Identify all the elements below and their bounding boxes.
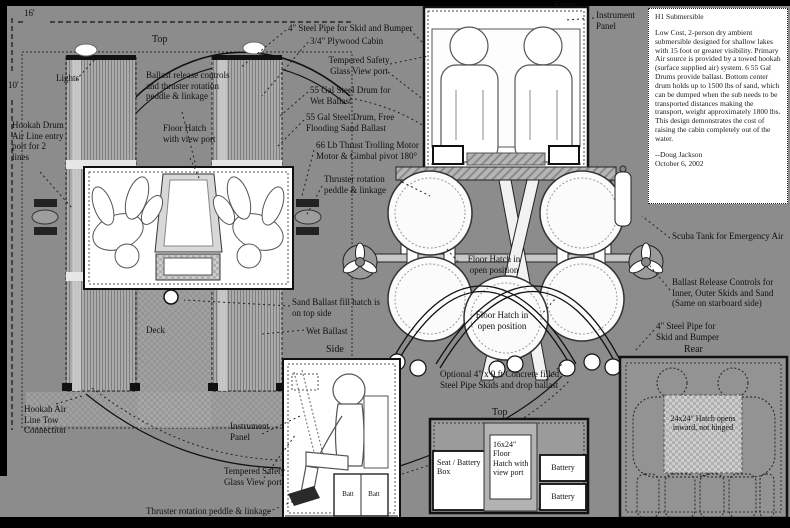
front-view-title: Front bbox=[554, 0, 594, 12]
instrument-panel-front-label: Instrument Panel bbox=[596, 10, 646, 31]
starboard-thruster-pod bbox=[295, 199, 321, 235]
sand-fill-hatch bbox=[164, 290, 178, 304]
batt-label-1: Batt bbox=[336, 490, 360, 498]
beam-dimension: 16' bbox=[24, 8, 35, 19]
hookah-tow-label: Hookah Air Line Tow Connection bbox=[24, 404, 74, 436]
rear-view-title: Rear bbox=[684, 344, 724, 356]
ballast-controls-label: Ballast release controls and thruster ro… bbox=[146, 70, 242, 102]
floor-hatch-16-label: 16x24" Floor Hatch with view port bbox=[493, 440, 529, 478]
cabin-plan bbox=[84, 167, 293, 289]
deck-label: Deck bbox=[146, 325, 186, 336]
floor-hatch-open-label-1: Floor Hatch in open position bbox=[458, 254, 530, 275]
optional-skids-label: Optional 4" x 9 ft Concrete filled Steel… bbox=[440, 369, 562, 390]
trolling-motor-label: 66 Lb Thrust Trolling Motor Motor & Gimb… bbox=[316, 140, 446, 161]
thruster-rotation-top-label: Thruster rotation peddle & linkage bbox=[324, 174, 402, 195]
floor-hatch-viewport-label: Floor Hatch with view port bbox=[163, 123, 223, 144]
scuba-tank-label: Scuba Tank for Emergency Air bbox=[672, 231, 790, 242]
rear-view bbox=[620, 357, 787, 518]
drum-wet-label: 55 Gal Steel Drum for Wet Ballast bbox=[310, 85, 402, 106]
description-title: H1 Submersible bbox=[655, 13, 781, 22]
rear-hatch-24x24 bbox=[664, 395, 742, 473]
front-view bbox=[424, 7, 588, 168]
starboard-trolling-motor bbox=[627, 243, 664, 279]
lights-label: Lights bbox=[56, 73, 96, 84]
battery-label-1: Battery bbox=[540, 463, 586, 472]
h1-submersible-blueprint: Top Front Side Rear Top 16' 10' Lights H… bbox=[0, 0, 790, 528]
steel-pipe-front-label: 4" Steel Pipe for Skid and Bumper bbox=[288, 23, 428, 34]
description-body: Low Cost, 2-person dry ambient submersib… bbox=[655, 29, 781, 144]
description-date: October 6, 2002 bbox=[655, 160, 781, 169]
hatch-24-label: 24x24" Hatch opens inward, not hinged bbox=[667, 414, 739, 433]
side-view-title: Side bbox=[326, 344, 366, 356]
description-box: H1 Submersible Low Cost, 2-person dry am… bbox=[648, 8, 788, 204]
tempered-glass-front-label: Tempered Safety Glass View port bbox=[328, 55, 390, 76]
sand-fill-label: Sand Ballast fill hatch is on top side bbox=[292, 297, 386, 318]
port-trolling-motor bbox=[341, 243, 378, 279]
scuba-tank bbox=[615, 166, 631, 226]
ballast-release-rear-label: Ballast Release Controls for Inner, Oute… bbox=[672, 277, 788, 309]
port-thruster-pod bbox=[32, 199, 58, 235]
drum-sand-label: 55 Gal Steel Drum, Free Flooding Sand Ba… bbox=[306, 112, 406, 133]
top-interior-title: Top bbox=[492, 407, 532, 419]
battery-label-2: Battery bbox=[540, 492, 586, 501]
plywood-cabin-label: 3/4" Plywood Cabin bbox=[310, 36, 420, 47]
light-starboard bbox=[243, 42, 265, 54]
steel-pipe-rear-label: 4" Steel Pipe for Skid and Bumper bbox=[656, 321, 738, 342]
thruster-rotation-bottom-label: Thruster rotation peddle & linkage bbox=[146, 506, 288, 517]
floor-hatch-open-label-2: Floor Hatch in open position bbox=[466, 310, 538, 331]
plan-view-title: Top bbox=[152, 34, 192, 46]
hookah-entry-label: Hookah Drum Air Line entry port for 2 li… bbox=[12, 120, 64, 162]
light-port bbox=[75, 44, 97, 56]
wet-ballast-label: Wet Ballast bbox=[306, 326, 366, 337]
instrument-panel-side-label: Instrument Panel bbox=[230, 421, 280, 442]
seat-battery-box-label: Seat / Battery Box bbox=[437, 458, 481, 477]
seat-back bbox=[364, 396, 388, 468]
length-dimension: 10' bbox=[8, 80, 19, 91]
batt-label-2: Batt bbox=[362, 490, 386, 498]
tempered-glass-side-label: Tempered Safety Glass View port bbox=[224, 466, 288, 487]
